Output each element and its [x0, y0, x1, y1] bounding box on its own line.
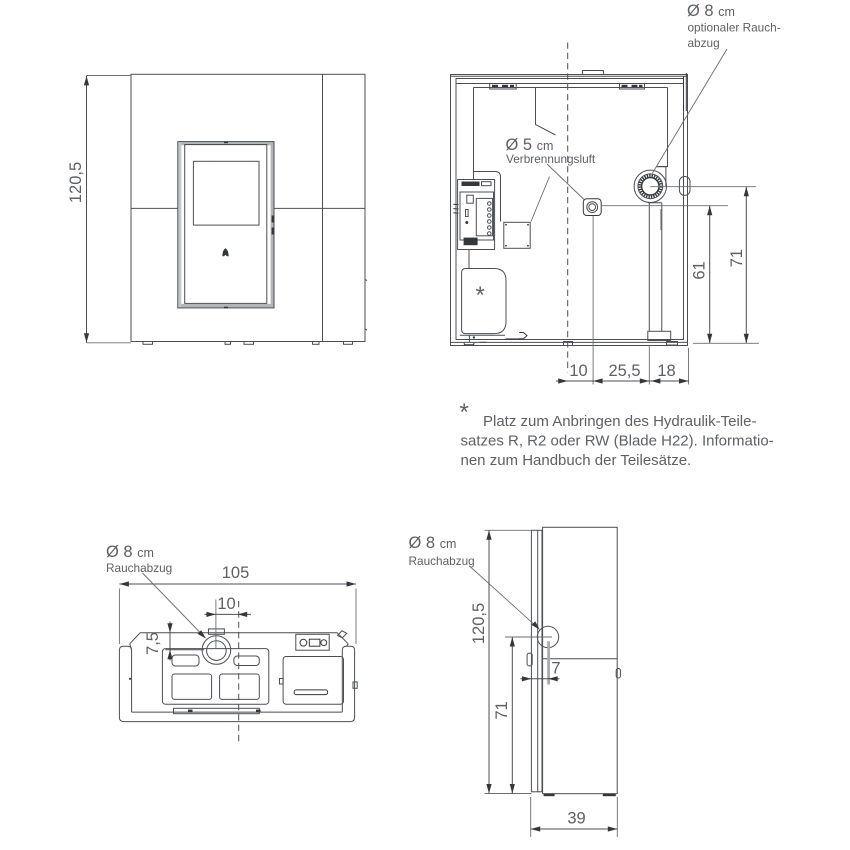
- svg-text:71: 71: [493, 701, 511, 719]
- svg-text:10: 10: [217, 595, 235, 613]
- svg-text:Ø 8 cm: Ø 8 cm: [409, 534, 457, 552]
- svg-text:120,5: 120,5: [470, 603, 488, 644]
- svg-text:Platz zum Anbringen des Hydrau: Platz zum Anbringen des Hydraulik-Teile-: [483, 413, 756, 430]
- svg-text:Ø 8 cm: Ø 8 cm: [106, 543, 154, 561]
- svg-text:61: 61: [691, 261, 709, 279]
- svg-text:25,5: 25,5: [608, 362, 640, 380]
- svg-text:*: *: [476, 282, 485, 309]
- svg-text:satzes R, R2 oder RW (Blade H2: satzes R, R2 oder RW (Blade H22). Inform…: [461, 433, 774, 450]
- svg-text:18: 18: [657, 362, 675, 380]
- svg-text:10: 10: [569, 362, 587, 380]
- svg-text:71: 71: [728, 249, 746, 267]
- svg-text:*: *: [460, 399, 469, 426]
- svg-text:Ø 8 cm: Ø 8 cm: [687, 2, 735, 20]
- svg-text:Verbrennungsluft: Verbrennungsluft: [506, 152, 596, 166]
- svg-text:120,5: 120,5: [67, 162, 85, 203]
- svg-text:nen zum Handbuch der Teilesätz: nen zum Handbuch der Teilesätze.: [461, 452, 692, 469]
- svg-text:Rauchabzug: Rauchabzug: [409, 554, 475, 568]
- svg-text:7,5: 7,5: [144, 632, 162, 655]
- svg-text:7: 7: [551, 660, 560, 678]
- svg-text:105: 105: [222, 564, 250, 582]
- svg-text:abzug: abzug: [688, 36, 720, 50]
- svg-text:optionaler Rauch-: optionaler Rauch-: [688, 20, 781, 34]
- svg-text:39: 39: [567, 810, 585, 828]
- svg-text:Rauchabzug: Rauchabzug: [106, 561, 172, 575]
